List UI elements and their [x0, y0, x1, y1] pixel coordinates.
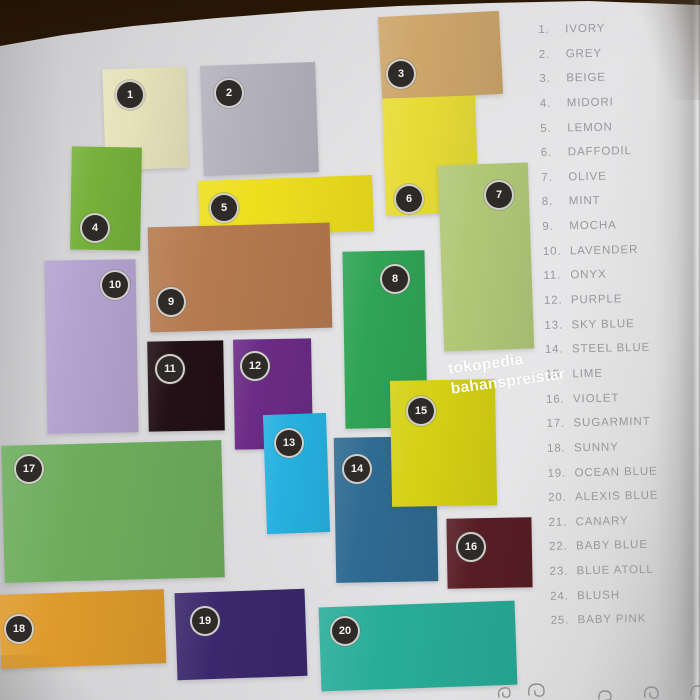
- swatch-badge-5: 5: [209, 193, 239, 223]
- legend-item-mocha: 9.MOCHA: [542, 212, 700, 240]
- swatch-badge-4: 4: [80, 213, 110, 243]
- legend-name: SUGARMINT: [573, 410, 651, 436]
- swatch-alexis-blue: [319, 601, 518, 692]
- legend-item-canary: 21.CANARY: [548, 507, 700, 535]
- swatch-badge-2: 2: [214, 78, 244, 108]
- swatch-badge-15: 15: [406, 396, 436, 426]
- legend-name: OCEAN BLUE: [574, 459, 658, 485]
- legend-name: BLUE ATOLL: [576, 558, 653, 584]
- swatch-ocean-blue: [175, 589, 308, 680]
- swatch-badge-3: 3: [386, 59, 416, 89]
- legend-item-sunny: 18.SUNNY: [547, 433, 700, 461]
- legend-name: DAFFODIL: [568, 139, 633, 165]
- legend-number: 8.: [542, 190, 564, 215]
- swatch-badge-10: 10: [100, 270, 130, 300]
- legend-item-grey: 2.GREY: [539, 39, 697, 67]
- legend-item-daffodil: 6.DAFFODIL: [541, 138, 699, 166]
- legend-number: 2.: [539, 42, 561, 67]
- legend-item-blue-atoll: 23.BLUE ATOLL: [549, 557, 700, 585]
- legend-item-sky-blue: 13.SKY BLUE: [544, 310, 700, 338]
- swirl-ornament-icon: [495, 681, 700, 700]
- legend-number: 10.: [543, 239, 565, 264]
- legend-number: 9.: [542, 215, 564, 240]
- legend-number: 6.: [541, 141, 563, 166]
- legend-name: BABY PINK: [577, 607, 646, 633]
- swatch-badge-7: 7: [484, 180, 514, 210]
- legend-item-olive: 7.OLIVE: [541, 163, 699, 191]
- legend-item-violet: 16.VIOLET: [546, 384, 700, 412]
- legend-number: 23.: [549, 560, 571, 585]
- legend-number: 21.: [548, 510, 570, 535]
- legend-name: LAVENDER: [570, 238, 639, 264]
- legend-name: VIOLET: [573, 386, 620, 412]
- legend-number: 11.: [543, 264, 565, 289]
- legend-name: IVORY: [565, 17, 606, 42]
- legend-number: 13.: [544, 313, 566, 338]
- legend-item-onyx: 11.ONYX: [543, 261, 700, 289]
- legend-number: 19.: [547, 461, 569, 486]
- legend-number: 3.: [539, 67, 561, 92]
- legend-name: MINT: [569, 189, 601, 214]
- legend-name: SUNNY: [574, 435, 619, 461]
- legend-number: 20.: [548, 486, 570, 511]
- legend-name: LEMON: [567, 115, 613, 141]
- legend-name: CANARY: [575, 509, 629, 535]
- legend-number: 25.: [550, 609, 572, 634]
- swatch-onyx: [147, 340, 225, 431]
- swatch-badge-16: 16: [456, 532, 486, 562]
- legend-name: BEIGE: [566, 66, 606, 91]
- swatch-badge-9: 9: [156, 287, 186, 317]
- legend-name: MOCHA: [569, 214, 617, 240]
- legend-number: 17.: [546, 412, 568, 437]
- legend-item-blush: 24.BLUSH: [550, 581, 700, 609]
- legend-number: 4.: [540, 91, 562, 116]
- legend-number: 7.: [541, 165, 563, 190]
- legend-number: 22.: [549, 535, 571, 560]
- legend-name: OLIVE: [568, 164, 607, 189]
- legend-name: STEEL BLUE: [572, 336, 651, 362]
- legend-item-ivory: 1.IVORY: [538, 15, 696, 43]
- legend-item-baby-pink: 25.BABY PINK: [550, 606, 700, 634]
- legend-item-alexis-blue: 20.ALEXIS BLUE: [548, 483, 700, 511]
- legend-name: BLUSH: [577, 583, 620, 609]
- legend-item-purple: 12.PURPLE: [544, 286, 700, 314]
- swatch-badge-12: 12: [240, 351, 270, 381]
- legend-name: ONYX: [570, 263, 607, 288]
- color-legend: 1.IVORY2.GREY3.BEIGE4.MIDORI5.LEMON6.DAF…: [538, 15, 700, 634]
- legend-name: ALEXIS BLUE: [575, 484, 659, 510]
- legend-name: GREY: [566, 41, 603, 66]
- legend-item-midori: 4.MIDORI: [540, 89, 698, 117]
- legend-item-steel-blue: 14.STEEL BLUE: [545, 335, 700, 363]
- swatch-badge-13: 13: [274, 428, 304, 458]
- swatch-badge-11: 11: [155, 354, 185, 384]
- swatch-badge-20: 20: [330, 616, 360, 646]
- legend-name: LIME: [572, 362, 603, 387]
- legend-number: 12.: [544, 289, 566, 314]
- legend-item-mint: 8.MINT: [542, 187, 700, 215]
- catalog-photo: 1234567891011121314151617181920 1.IVORY2…: [0, 0, 700, 700]
- legend-number: 16.: [546, 387, 568, 412]
- legend-number: 18.: [547, 436, 569, 461]
- swatch-badge-18: 18: [4, 614, 34, 644]
- legend-name: SKY BLUE: [571, 312, 635, 338]
- swatch-badge-1: 1: [115, 80, 145, 110]
- legend-number: 24.: [550, 584, 572, 609]
- swatch-badge-6: 6: [394, 184, 424, 214]
- legend-number: 5.: [540, 116, 562, 141]
- legend-name: MIDORI: [567, 90, 614, 116]
- swatch-badge-8: 8: [380, 264, 410, 294]
- legend-item-beige: 3.BEIGE: [539, 64, 697, 92]
- swatch-badge-14: 14: [342, 454, 372, 484]
- legend-item-ocean-blue: 19.OCEAN BLUE: [547, 458, 700, 486]
- legend-item-lemon: 5.LEMON: [540, 113, 698, 141]
- legend-name: PURPLE: [571, 287, 623, 313]
- swatch-badge-19: 19: [190, 606, 220, 636]
- swatch-grey: [200, 62, 319, 176]
- swatch-badge-17: 17: [14, 454, 44, 484]
- legend-item-baby-blue: 22.BABY BLUE: [549, 532, 700, 560]
- legend-item-lavender: 10.LAVENDER: [543, 236, 700, 264]
- legend-number: 1.: [538, 18, 560, 43]
- swatch-lime: [390, 379, 497, 507]
- page-bottom-left-shadow: [0, 655, 130, 700]
- legend-name: BABY BLUE: [576, 533, 648, 559]
- legend-item-sugarmint: 17.SUGARMINT: [546, 409, 700, 437]
- legend-item-lime: 15.LIME: [545, 360, 700, 388]
